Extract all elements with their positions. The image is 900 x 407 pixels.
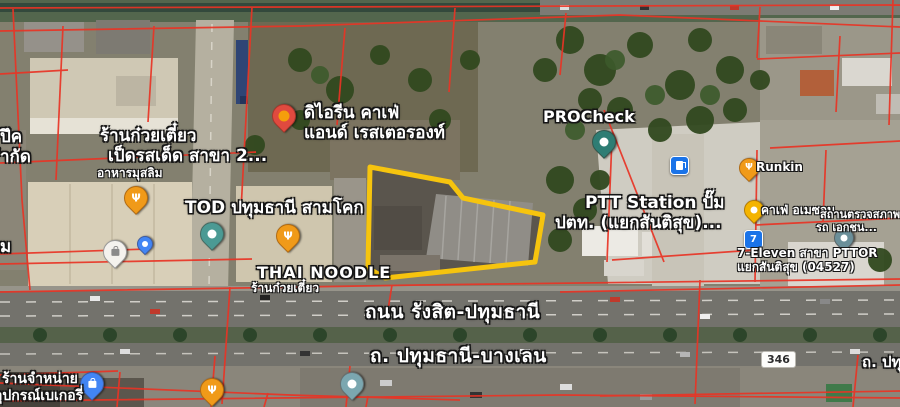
thai-noodle-sublabel[interactable]: ร้านก๋วยเตี๋ยว <box>251 281 319 295</box>
satellite-map-canvas[interactable]: Ψ Ψ Ψ 7 Ψ ดิไอรีน คาเฟ่ แอนด์ เรสเตอรองท… <box>0 0 900 407</box>
bakery-supply-label[interactable]: ร้านจำหน่าย อุปกรณ์เบเกอรี่ <box>2 371 83 404</box>
cafe-irene-label-line1: ดิไอรีน คาเฟ่ <box>304 103 445 123</box>
store-icon: 7 <box>750 235 757 245</box>
cafe-icon <box>276 108 292 124</box>
restaurant-icon: Ψ <box>745 164 753 173</box>
route-346-shield: 346 <box>761 351 796 368</box>
procheck-label[interactable]: PROCheck <box>543 108 635 127</box>
restaurant-icon: Ψ <box>131 193 140 204</box>
place-dot-icon <box>598 136 611 149</box>
place-dot-icon <box>346 378 359 391</box>
fuel-pump-icon <box>676 161 683 170</box>
ptt-station-label[interactable]: PTT Station ปั๊ม ปตท. (แยกสันติสุข)... <box>585 193 724 233</box>
shopping-bag-icon <box>111 249 119 256</box>
place-dot-icon <box>141 240 149 248</box>
shopping-bag-icon <box>88 381 96 388</box>
cafe-irene-label[interactable]: ดิไอรีน คาเฟ่ แอนด์ เรสเตอรองท์ <box>304 103 445 143</box>
tod-label[interactable]: TOD ปทุมธานี สามโคก <box>185 198 364 218</box>
road-label-secondary: ถ. ปทุมธานี-บางเลน <box>370 345 547 367</box>
road-label-partial-right: ถ. ปทุ <box>862 354 900 372</box>
road-label-primary: ถนน รังสิต-ปทุมธานี <box>365 301 540 323</box>
cafe-dot-icon <box>749 205 759 215</box>
duck-noodle-label[interactable]: ร้านก๋วยเตี๋ยว เป็ดรสเด็ด สาขา 2... อาหา… <box>100 126 267 180</box>
restaurant-icon: Ψ <box>283 231 292 242</box>
restaurant-icon: Ψ <box>207 385 216 396</box>
left-edge-partial-label-2: ม <box>0 237 11 257</box>
fuel-station-icon[interactable] <box>670 156 689 175</box>
runkin-label[interactable]: Runkin <box>756 160 803 174</box>
place-dot-icon <box>206 228 219 241</box>
seven-eleven-label[interactable]: 7-Eleven สาขา PTTOR แยกสันติสุข (04527) <box>737 246 878 274</box>
left-edge-partial-label: ปึค ำกัด <box>0 127 31 167</box>
cafe-irene-label-line2: แอนด์ เรสเตอรองท์ <box>304 123 445 143</box>
inspection-station-label[interactable]: สถานตรวจสภาพ รถ เอกชน... <box>820 209 900 235</box>
